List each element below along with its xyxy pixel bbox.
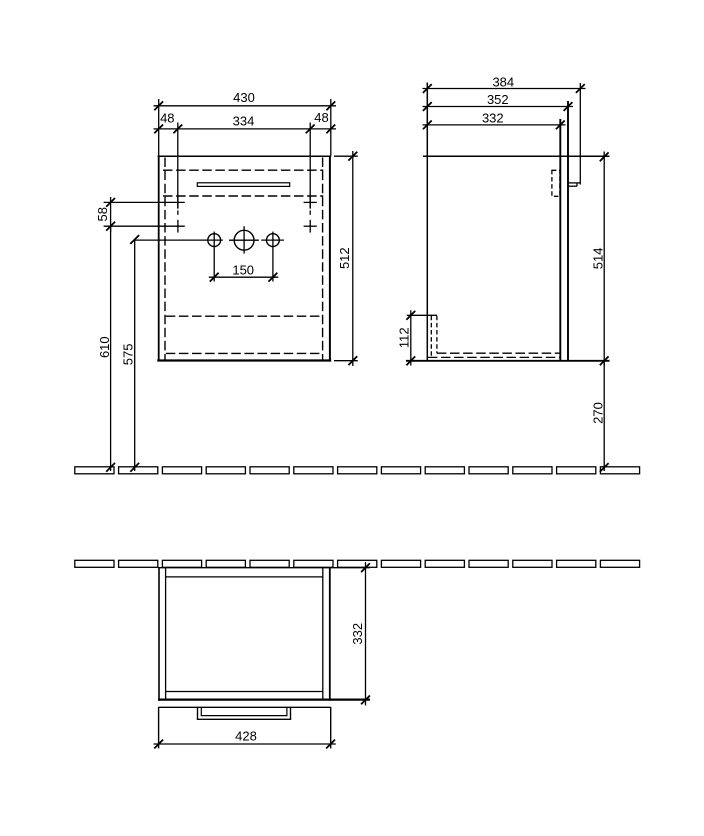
svg-text:332: 332 [350,623,365,645]
svg-text:48: 48 [314,110,328,125]
svg-text:334: 334 [233,113,255,128]
svg-text:575: 575 [121,344,136,366]
svg-text:512: 512 [337,247,352,269]
svg-text:112: 112 [396,327,411,348]
svg-text:430: 430 [233,90,255,105]
svg-text:332: 332 [482,110,504,125]
svg-text:352: 352 [487,92,509,107]
svg-text:48: 48 [160,110,174,125]
svg-text:384: 384 [492,74,514,89]
svg-text:270: 270 [590,402,605,424]
svg-text:610: 610 [97,336,112,358]
svg-text:58: 58 [95,207,110,221]
svg-text:428: 428 [235,728,257,743]
svg-text:150: 150 [232,263,254,278]
svg-text:514: 514 [590,248,605,270]
